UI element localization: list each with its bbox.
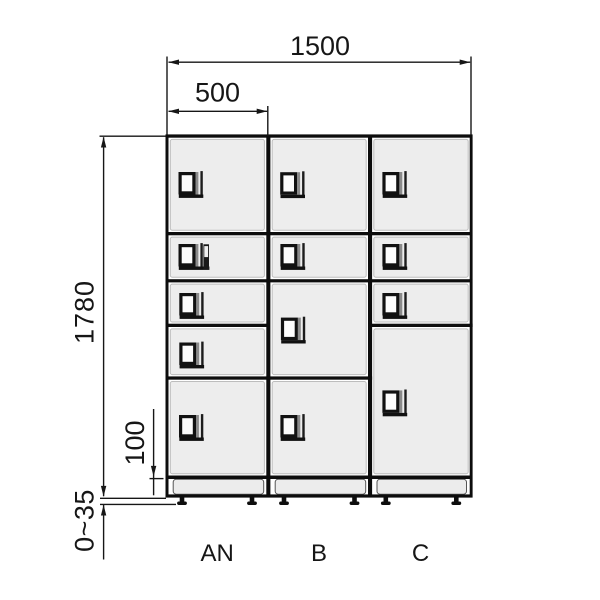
svg-text:1500: 1500 bbox=[290, 31, 350, 61]
svg-text:0~35: 0~35 bbox=[69, 489, 99, 552]
svg-text:500: 500 bbox=[195, 78, 240, 108]
svg-text:100: 100 bbox=[120, 420, 150, 465]
svg-text:AN: AN bbox=[201, 540, 234, 567]
svg-text:B: B bbox=[311, 540, 327, 567]
svg-text:1780: 1780 bbox=[70, 280, 100, 344]
svg-text:C: C bbox=[412, 540, 429, 567]
